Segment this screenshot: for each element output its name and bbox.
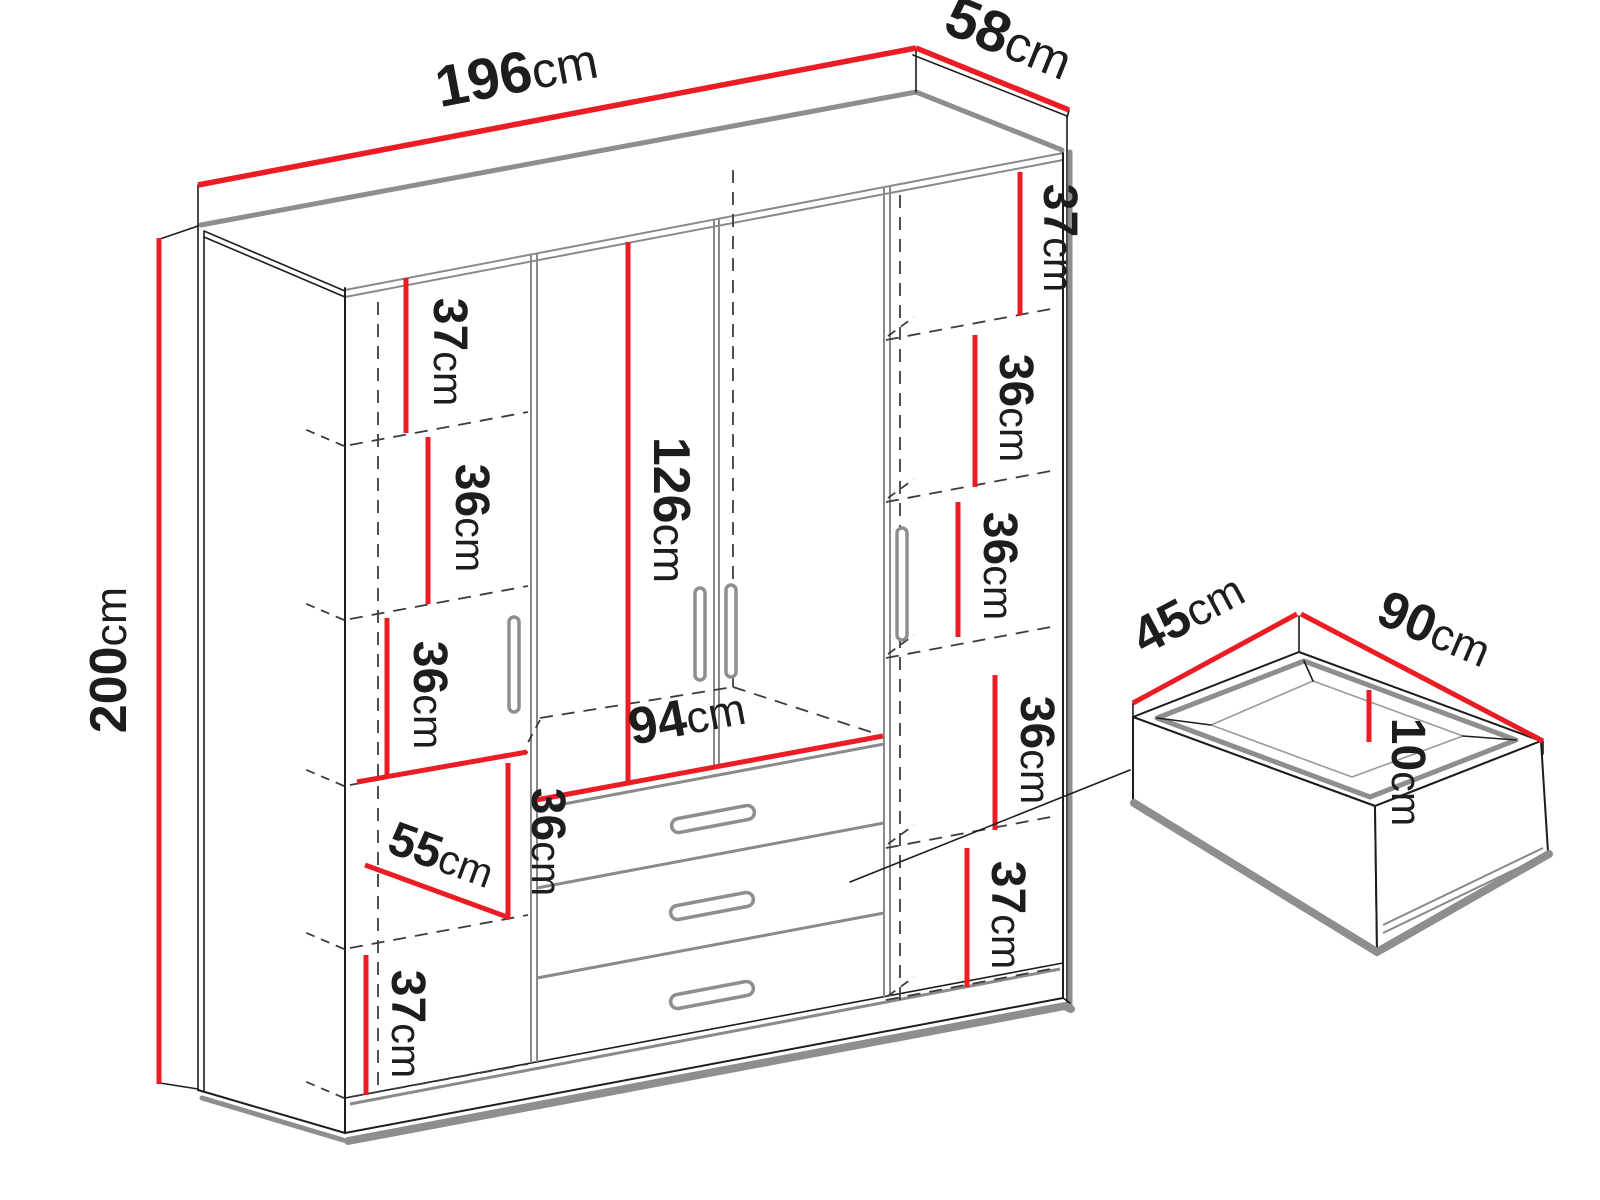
door1-handle [509, 617, 519, 712]
dim-label-right-s1: 37cm [1033, 184, 1086, 292]
drawer2-handle [669, 891, 754, 920]
wardrobe-top-panel [198, 48, 1069, 297]
dim-label-width: 196cm [430, 26, 603, 120]
dim-label-left-s1: 37cm [423, 298, 476, 406]
dim-label-depth: 58cm [936, 0, 1082, 93]
door4-handle [897, 528, 907, 640]
dim-label-right-s4: 36cm [1010, 696, 1063, 804]
dim-label-right-s5: 37cm [981, 861, 1034, 969]
wardrobe-dimension-diagram: 196cm 58cm 200cm 37cm 36cm 36cm 36cm 55c… [0, 0, 1600, 1200]
dim-label-height: 200cm [80, 587, 138, 733]
door3-handle [726, 585, 736, 677]
dim-label-opening-width: 94cm [624, 678, 750, 757]
dimension-labels: 196cm 58cm 200cm 37cm 36cm 36cm 36cm 55c… [80, 0, 1500, 1078]
dim-label-drawer-height: 10cm [1381, 718, 1434, 826]
wardrobe-left-side-panel [198, 225, 345, 1140]
door2-handle [695, 588, 705, 680]
dim-label-left-s5: 37cm [381, 970, 434, 1078]
dim-label-left-s3: 36cm [403, 641, 456, 749]
drawer3-handle [669, 980, 754, 1009]
dim-label-left-s4: 36cm [521, 788, 574, 896]
dim-label-right-s2: 36cm [989, 354, 1042, 462]
dim-label-right-s3: 36cm [973, 512, 1026, 620]
door-seams [531, 186, 890, 1063]
dim-label-drawer-width: 90cm [1369, 580, 1500, 679]
drawer-separators [537, 744, 884, 978]
diagram-canvas: 196cm 58cm 200cm 37cm 36cm 36cm 36cm 55c… [0, 0, 1600, 1200]
drawer1-handle [670, 804, 755, 833]
dim-label-opening-height: 126cm [642, 437, 700, 583]
dim-label-left-inner-width: 55cm [381, 812, 501, 899]
dim-label-left-s2: 36cm [445, 464, 498, 572]
drawer-detail [1133, 614, 1549, 952]
